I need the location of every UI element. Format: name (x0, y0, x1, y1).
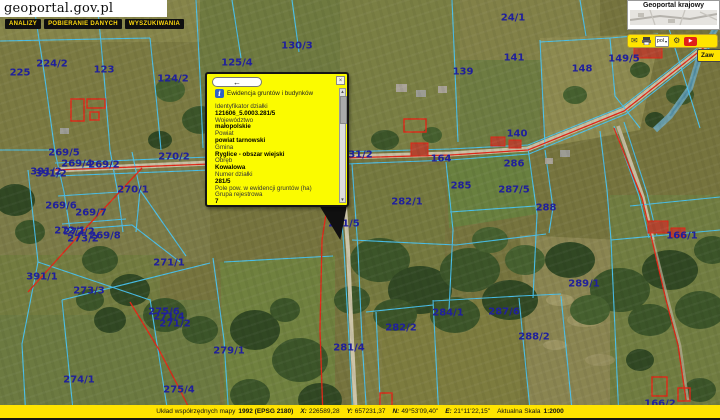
parcel-label-287-6: 287/6 (488, 307, 519, 318)
back-button[interactable]: ← (212, 77, 262, 87)
crs-label: Układ współrzędnych mapy (156, 408, 235, 415)
logo[interactable]: geoportal.gov.pl (0, 0, 167, 17)
mail-icon[interactable]: ✉ (631, 36, 638, 46)
parcel-labels-layer: 24/1225224/2123124/2125/4130/31391411481… (0, 0, 720, 420)
parcel-label-166-1: 166/1 (666, 231, 697, 242)
e-label: E: (445, 408, 452, 415)
parcel-label-282-2: 282/2 (385, 323, 416, 334)
n-label: N: (392, 408, 399, 415)
parcel-label-124-2: 124/2 (157, 74, 188, 85)
minimap-thumbnail[interactable] (630, 10, 717, 25)
map-content-tab[interactable]: Zaw (697, 49, 720, 62)
parcel-label-269-7: 269/7 (75, 208, 106, 219)
parcel-label-225: 225 (10, 68, 31, 79)
parcel-label-288: 288 (536, 203, 557, 214)
parcel-label-271-2: 271/2 (159, 319, 190, 330)
scroll-up-icon[interactable]: ▲ (340, 89, 345, 94)
geoportal-app: 24/1225224/2123124/2125/4130/31391411481… (0, 0, 720, 420)
parcel-info-popup: ← × i Ewidencja gruntów i budynków Ident… (205, 72, 349, 207)
parcel-label-281-4: 281/4 (333, 343, 364, 354)
parcel-label-288-2: 288/2 (518, 332, 549, 343)
parcel-label-279-1: 279/1 (213, 346, 244, 357)
parcel-label-141: 141 (504, 53, 525, 64)
popup-title: Ewidencja gruntów i budynków (227, 90, 313, 97)
popup-field-label: Numer działki (215, 172, 336, 179)
popup-field-value: powiat tarnowski (215, 138, 336, 145)
crs-value: 1992 (EPSG 2180) (238, 408, 293, 415)
parcel-label-24-1: 24/1 (501, 13, 526, 24)
parcel-label-282-1: 282/1 (391, 197, 422, 208)
logo-text: geoportal.gov.pl (4, 1, 113, 16)
map-toolbar: ✉ pol ▾ ⚙ ▶ (627, 34, 718, 48)
parcel-label-130-3: 130/3 (281, 41, 312, 52)
close-button[interactable]: × (336, 76, 345, 85)
parcel-label-269-8: 269/8 (89, 231, 120, 242)
parcel-label-287-5: 287/5 (498, 185, 529, 196)
parcel-label-273-3: 273/3 (73, 286, 104, 297)
x-value: 226589,28 (309, 408, 340, 415)
back-arrow-icon: ← (233, 78, 241, 87)
popup-field-label: Oznaczenie użytku (215, 206, 336, 207)
y-label: Y: (347, 408, 353, 415)
language-value: pol (657, 38, 664, 44)
n-value: 49°53'09,40" (401, 408, 438, 415)
menu-wyszukiwania-button[interactable]: WYSZUKIWANIA (125, 19, 184, 29)
scroll-down-icon[interactable]: ▼ (340, 197, 345, 202)
play-icon: ▶ (689, 38, 693, 44)
print-icon[interactable] (642, 37, 651, 45)
parcel-label-285: 285 (451, 181, 472, 192)
language-select[interactable]: pol ▾ (655, 36, 669, 47)
parcel-label-224-2: 224/2 (36, 59, 67, 70)
e-value: 21°11'22,15" (454, 408, 490, 415)
popup-field-label: Grupa rejestrowa (215, 192, 336, 199)
parcel-label-391-1: 391/1 (26, 272, 57, 283)
scale-value: 1:2000 (543, 408, 563, 415)
x-label: X: (300, 408, 307, 415)
parcel-label-269-6: 269/6 (45, 201, 76, 212)
parcel-label-270-2: 270/2 (158, 152, 189, 163)
parcel-label-289-1: 289/1 (568, 279, 599, 290)
panel-title: Geoportal krajowy (630, 2, 717, 9)
y-value: 657231,37 (355, 408, 386, 415)
info-icon: i (215, 89, 224, 98)
parcel-label-275-4: 275/4 (163, 385, 194, 396)
parcel-label-269-2: 269/2 (88, 160, 119, 171)
parcel-label-286: 286 (504, 159, 525, 170)
scale-label: Aktualna Skala (497, 408, 540, 415)
parcel-label-164: 164 (431, 154, 452, 165)
parcel-label-125-4: 125/4 (221, 58, 252, 69)
popup-content: i Ewidencja gruntów i budynków Identyfik… (215, 89, 336, 207)
scrollbar-thumb[interactable] (340, 96, 347, 124)
video-button[interactable]: ▶ (684, 37, 697, 46)
parcel-label-391-2: 391/2 (35, 169, 66, 180)
parcel-label-123: 123 (94, 65, 115, 76)
menu-analizy-button[interactable]: ANALIZY (5, 19, 41, 29)
parcel-label-270-1: 270/1 (117, 185, 148, 196)
parcel-label-269-5: 269/5 (48, 148, 79, 159)
status-bar: Układ współrzędnych mapy 1992 (EPSG 2180… (0, 405, 720, 420)
chevron-down-icon: ▾ (665, 39, 667, 44)
parcel-label-139: 139 (453, 67, 474, 78)
parcel-label-140: 140 (507, 129, 528, 140)
parcel-label-271-1: 271/1 (153, 258, 184, 269)
menu-pobieranie-button[interactable]: POBIERANIE DANYCH (44, 19, 122, 29)
popup-fields: Identyfikator działki121606_5.0003.281/5… (215, 104, 336, 207)
parcel-label-284-1: 284/1 (432, 308, 463, 319)
geoportal-krajowy-panel[interactable]: Geoportal krajowy (627, 0, 720, 30)
popup-field-value: Ryglice - obszar wiejski (215, 152, 336, 159)
close-icon: × (339, 78, 343, 84)
popup-scrollbar[interactable]: ▲ ▼ (339, 88, 346, 203)
settings-gear-icon[interactable]: ⚙ (673, 36, 680, 46)
parcel-label-148: 148 (572, 64, 593, 75)
parcel-label-274-1: 274/1 (63, 375, 94, 386)
parcel-label-149-5: 149/5 (608, 54, 639, 65)
main-menu: ANALIZY POBIERANIE DANYCH WYSZUKIWANIA (5, 19, 184, 29)
